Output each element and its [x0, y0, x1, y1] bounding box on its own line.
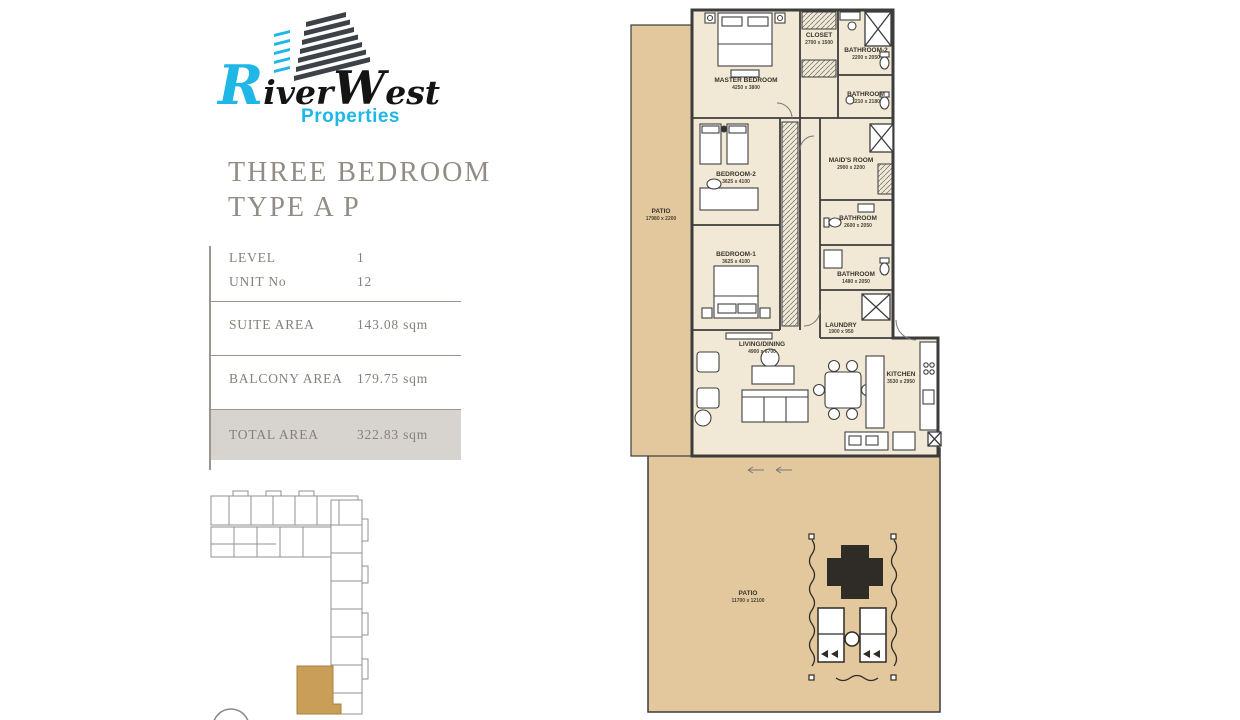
svg-text:MASTER BEDROOM: MASTER BEDROOM	[714, 77, 777, 84]
table-row-level: LEVEL 1	[211, 246, 461, 270]
svg-text:PATIO: PATIO	[652, 208, 671, 215]
svg-text:BATHROOM: BATHROOM	[839, 215, 877, 222]
svg-text:BEDROOM-2: BEDROOM-2	[716, 171, 756, 178]
page-title-line1: THREE BEDROOM	[228, 155, 491, 190]
svg-text:1480 x 2050: 1480 x 2050	[842, 279, 870, 285]
brochure-page: RiverWest Properties THREE BEDROOM TYPE …	[0, 0, 1240, 720]
svg-text:BATHROOM: BATHROOM	[847, 91, 885, 98]
keyplan-bump	[362, 566, 368, 583]
svg-text:3625 x 4100: 3625 x 4100	[722, 259, 750, 265]
svg-text:17980 x 2200: 17980 x 2200	[646, 216, 677, 222]
patio-table	[845, 632, 859, 646]
table-row-total-area: TOTAL AREA 322.83 sqm	[211, 410, 461, 460]
row-label: UNIT No	[229, 274, 357, 290]
keyplan-bump	[362, 613, 368, 635]
row-value: 143.08 sqm	[357, 317, 461, 333]
floor-plan: MASTER BEDROOM 4250 x 3800 CLOSET 2700 x…	[620, 0, 945, 720]
svg-text:LIVING/DINING: LIVING/DINING	[739, 341, 785, 348]
keyplan-right-arm	[331, 500, 362, 714]
table-row-unit-no: UNIT No 12	[211, 270, 461, 294]
svg-text:2200 x 2050: 2200 x 2050	[852, 55, 880, 61]
svg-text:LAUNDRY: LAUNDRY	[825, 322, 857, 329]
room-label-laundry: LAUNDRY 1900 x 950	[825, 322, 857, 335]
keyplan-top-row2	[211, 527, 332, 557]
row-value: 322.83 sqm	[357, 427, 461, 443]
brand-tagline: Properties	[218, 106, 400, 128]
keyplan-bump	[299, 491, 314, 496]
svg-text:KITCHEN: KITCHEN	[887, 371, 916, 378]
keyplan-bump	[266, 491, 281, 496]
svg-text:4250 x 3800: 4250 x 3800	[732, 85, 760, 91]
svg-text:2700 x 1500: 2700 x 1500	[805, 40, 833, 46]
building-key-plan	[195, 485, 410, 720]
row-label: SUITE AREA	[229, 317, 357, 333]
svg-text:MAID'S ROOM: MAID'S ROOM	[829, 157, 874, 164]
row-value: 1	[357, 250, 461, 266]
svg-text:CLOSET: CLOSET	[806, 32, 832, 39]
svg-text:BATHROOM-2: BATHROOM-2	[844, 47, 888, 54]
table-row-suite-area: SUITE AREA 143.08 sqm	[211, 302, 461, 348]
patio-main-area	[648, 448, 940, 712]
patio-side-area	[631, 25, 692, 456]
svg-text:1210 x 2180: 1210 x 2180	[852, 99, 880, 105]
svg-text:3530 x 2950: 3530 x 2950	[887, 379, 915, 385]
svg-text:4900 x 6700: 4900 x 6700	[748, 349, 776, 355]
svg-text:BEDROOM-1: BEDROOM-1	[716, 251, 756, 258]
compass-circle-icon	[213, 709, 249, 720]
svg-text:BATHROOM: BATHROOM	[837, 271, 875, 278]
keyplan-bump	[362, 519, 368, 541]
page-title: THREE BEDROOM TYPE A P	[228, 155, 491, 225]
row-value: 12	[357, 274, 461, 290]
row-label: TOTAL AREA	[229, 427, 357, 443]
svg-text:3625 x 4100: 3625 x 4100	[722, 179, 750, 185]
page-title-line2: TYPE A P	[228, 190, 491, 225]
keyplan-bump	[362, 659, 368, 679]
svg-text:2600 x 2050: 2600 x 2050	[844, 223, 872, 229]
svg-text:11700 x 12100: 11700 x 12100	[731, 598, 764, 604]
svg-text:PATIO: PATIO	[739, 590, 758, 597]
table-row-balcony-area: BALCONY AREA 179.75 sqm	[211, 356, 461, 402]
row-label: LEVEL	[229, 250, 357, 266]
keyplan-bump	[233, 491, 248, 496]
svg-text:1900 x 950: 1900 x 950	[828, 329, 853, 335]
unit-details-table: LEVEL 1 UNIT No 12 SUITE AREA 143.08 sqm…	[209, 246, 461, 470]
planter-cross-icon	[827, 558, 883, 586]
row-value: 179.75 sqm	[357, 371, 461, 387]
svg-text:2900 x 2200: 2900 x 2200	[837, 165, 865, 171]
brand-logo: RiverWest Properties	[218, 4, 418, 134]
row-label: BALCONY AREA	[229, 371, 357, 387]
